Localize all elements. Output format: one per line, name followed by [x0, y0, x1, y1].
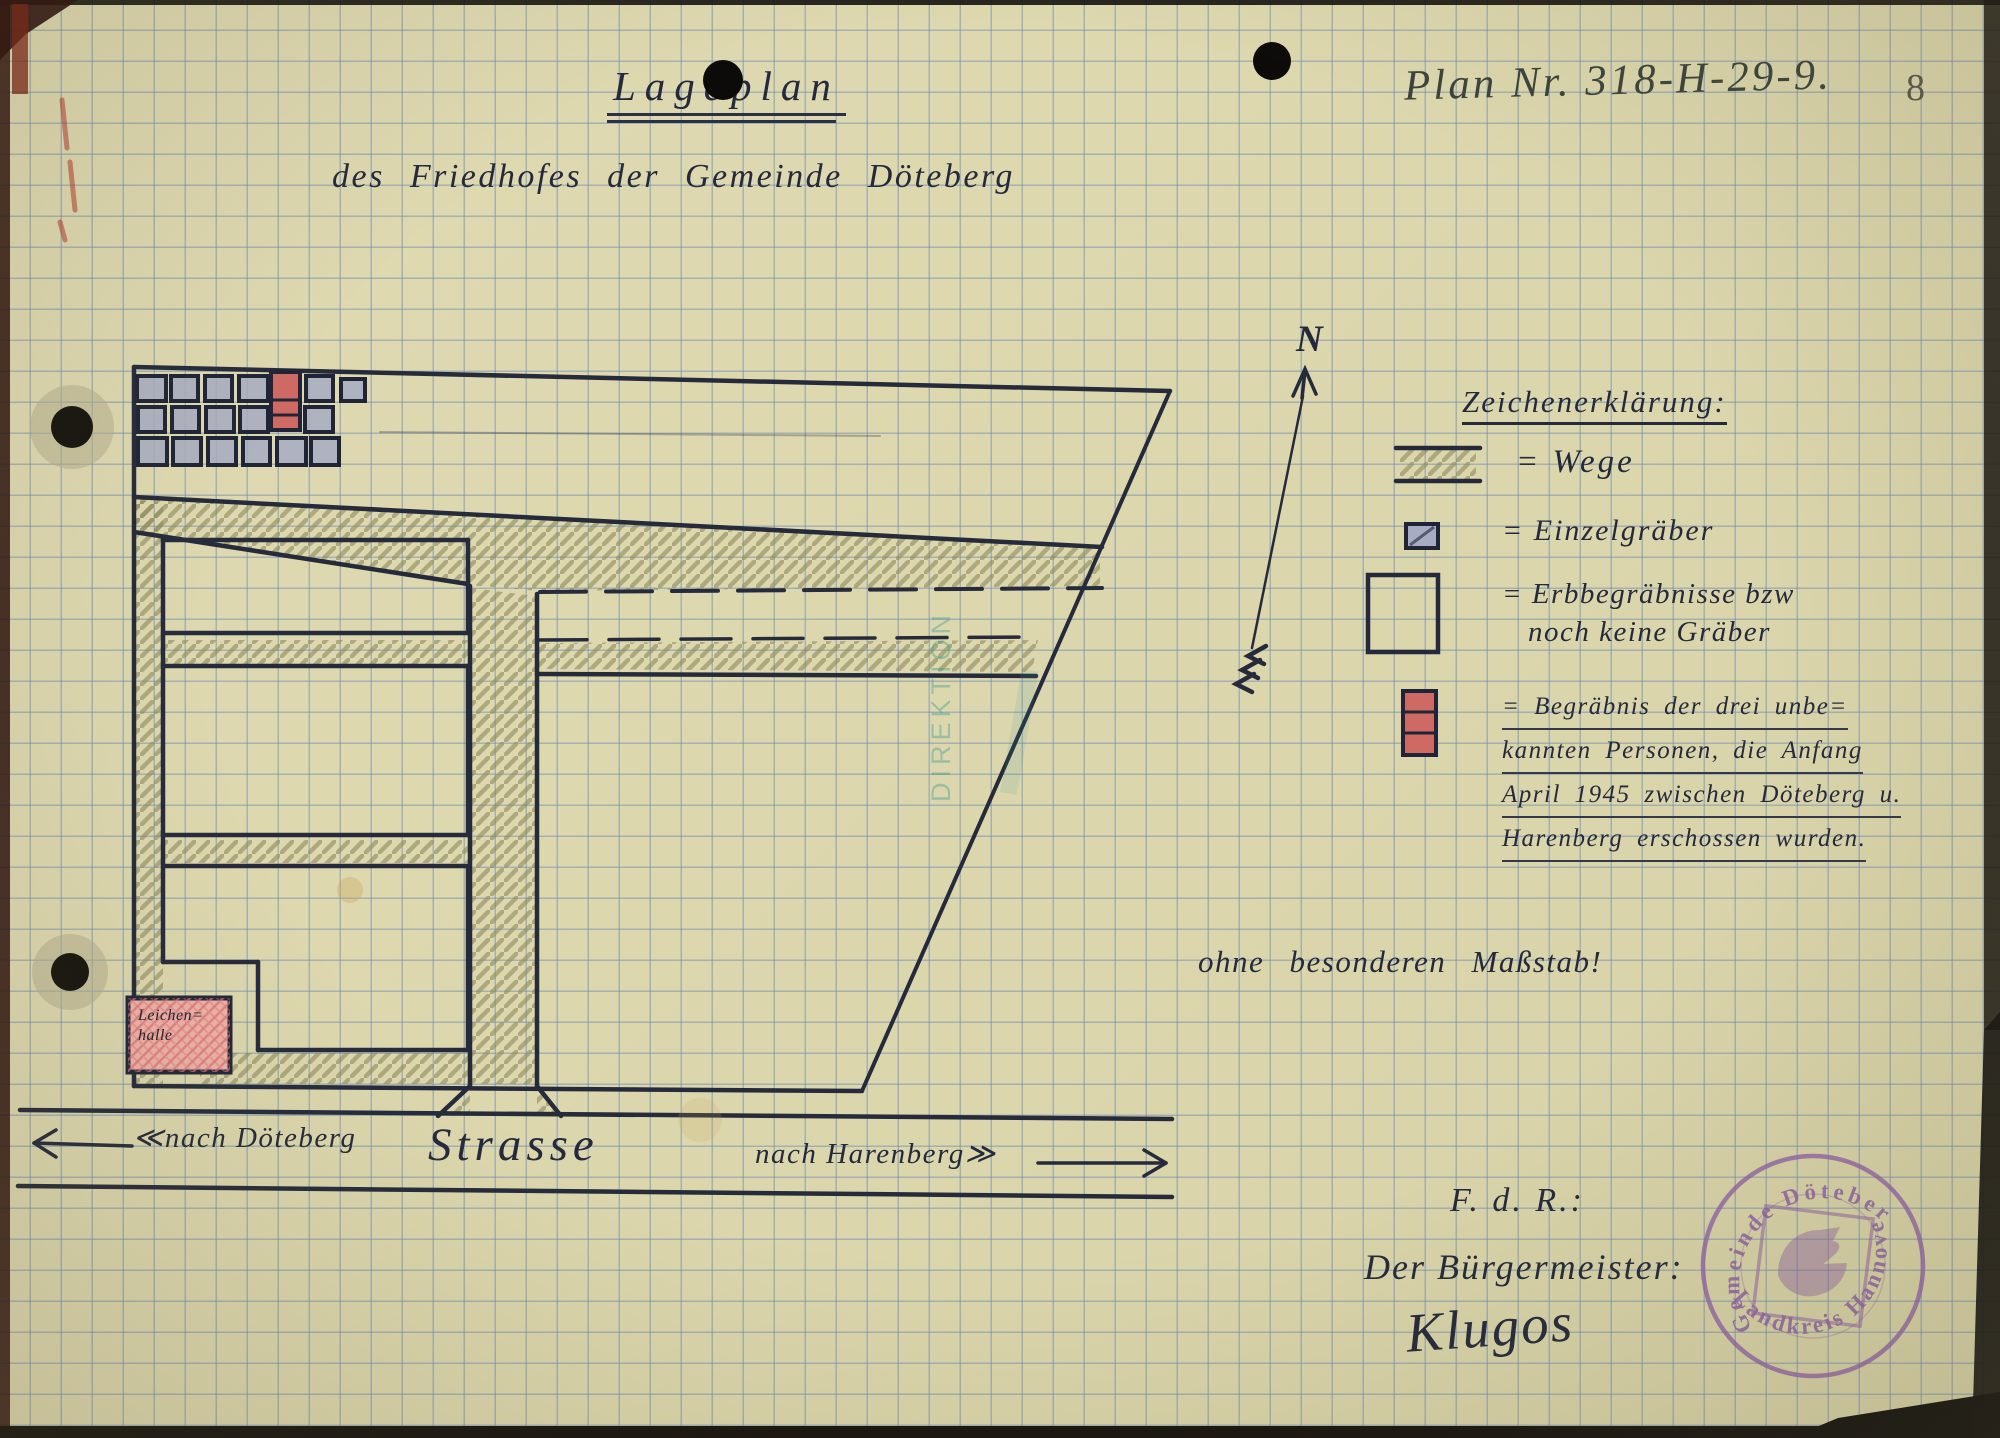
- legend-heading: Zeichenerklärung:: [1462, 384, 1727, 425]
- scanned-plan-page: DIREKTION Gemeinde Döteberg Landkreis Ha…: [0, 0, 2000, 1438]
- legend-label-massengrab: = Begräbnis der drei unbe= kannten Perso…: [1502, 686, 1901, 862]
- legend-label-wege: = Wege: [1516, 444, 1635, 481]
- legend-massengrab-line3: April 1945 zwischen Döteberg u.: [1502, 774, 1901, 818]
- einzelgraeber-swatch: [1406, 524, 1438, 548]
- signature: Klugos: [1404, 1290, 1576, 1365]
- arrow-right-icon: [1038, 1150, 1166, 1176]
- erbbegraebnisse-swatch: [1368, 575, 1438, 652]
- page-subtitle: des Friedhofes der Gemeinde Döteberg: [332, 158, 1015, 196]
- direction-label-harenberg: nach Harenberg≫: [755, 1136, 997, 1171]
- legend-label-erbbegraebnisse-line1: = Erbbegräbnisse bzw: [1502, 578, 1795, 611]
- massengrab-swatch: [1403, 691, 1436, 755]
- page-title: Lageplan: [607, 62, 846, 116]
- leichenhalle-label-line1: Leichen=: [138, 1006, 203, 1026]
- leichenhalle-label: Leichen= halle: [138, 1006, 203, 1046]
- scale-note: ohne besonderen Maßstab!: [1198, 944, 1602, 980]
- street-name: Strasse: [428, 1118, 599, 1172]
- title-underline: [607, 120, 836, 123]
- single-grave-squares: [137, 376, 365, 465]
- legend-massengrab-line1: = Begräbnis der drei unbe=: [1502, 686, 1848, 730]
- signer-title: Der Bürgermeister:: [1364, 1246, 1684, 1288]
- legend-massengrab-line4: Harenberg erschossen wurden.: [1502, 818, 1866, 862]
- north-arrow: [1236, 369, 1316, 692]
- legend-label-einzelgraeber: = Einzelgräber: [1502, 514, 1714, 548]
- arrow-left-icon: [34, 1130, 132, 1157]
- certification-note: F. d. R.:: [1450, 1182, 1585, 1220]
- north-label: N: [1296, 318, 1324, 361]
- direction-label-doeteberg: ≪nach Döteberg: [133, 1120, 356, 1155]
- legend-massengrab-line2: kannten Personen, die Anfang: [1502, 730, 1863, 774]
- municipal-stamp: Gemeinde Döteberg Landkreis Hannover: [1661, 1114, 1965, 1418]
- page-title-block: Lageplan: [607, 62, 846, 123]
- legend-label-erbbegraebnisse-line2: noch keine Gräber: [1528, 616, 1771, 649]
- leichenhalle-label-line2: halle: [138, 1026, 203, 1046]
- page-number: 8: [1906, 66, 1927, 110]
- wege-swatch: [1396, 448, 1480, 481]
- memorial-grave-square: [271, 372, 300, 430]
- watermark-text: DIREKTION: [926, 610, 956, 802]
